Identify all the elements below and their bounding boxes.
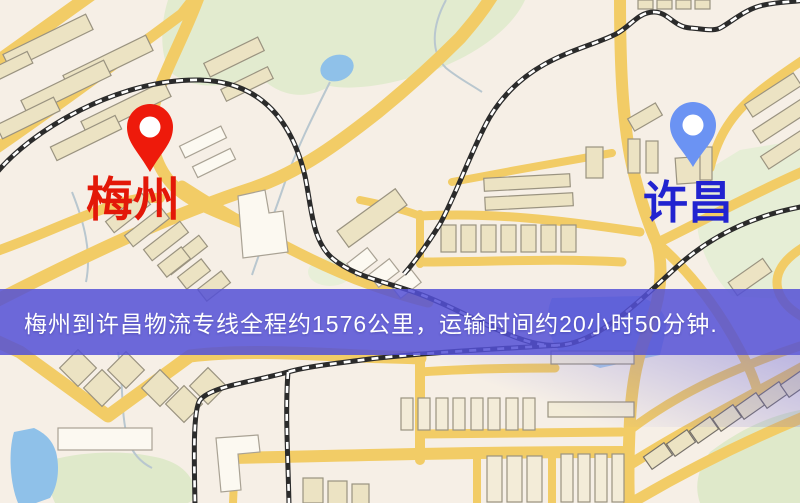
origin-label: 梅州 <box>86 176 180 223</box>
pin-hole <box>140 117 161 138</box>
map[interactable]: 梅州 许昌 梅州到许昌物流专线全程约1576公里，运输时间约20小时50分钟. <box>0 0 800 503</box>
route-summary-text: 梅州到许昌物流专线全程约1576公里，运输时间约20小时50分钟. <box>0 305 718 339</box>
map-canvas <box>0 0 800 503</box>
destination-label: 许昌 <box>643 180 733 225</box>
pin-hole <box>683 115 704 136</box>
route-banner: 梅州到许昌物流专线全程约1576公里，运输时间约20小时50分钟. <box>0 289 800 355</box>
